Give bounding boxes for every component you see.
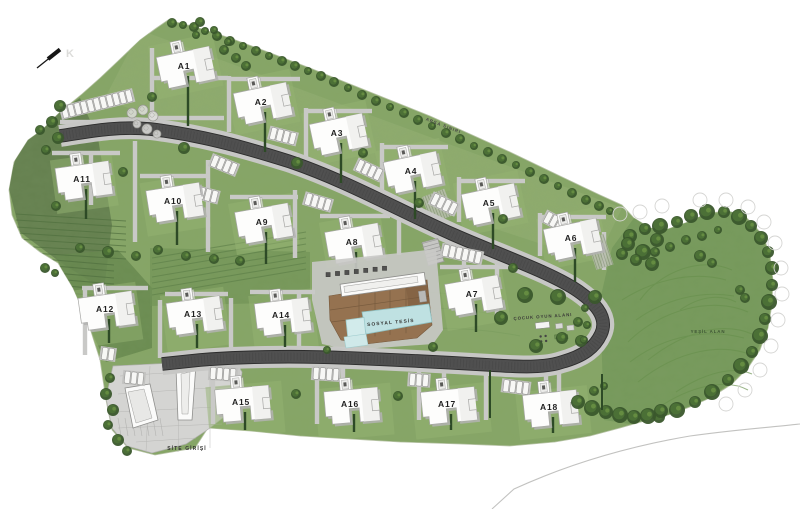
svg-text:SİTE GİRİŞİ: SİTE GİRİŞİ — [167, 445, 207, 452]
svg-text:A14: A14 — [272, 310, 290, 320]
svg-text:A3: A3 — [331, 128, 343, 138]
svg-text:A15: A15 — [232, 397, 250, 407]
svg-text:A12: A12 — [96, 304, 114, 314]
svg-text:K: K — [66, 48, 74, 60]
svg-text:A17: A17 — [438, 399, 456, 409]
svg-text:A10: A10 — [164, 196, 182, 206]
svg-text:A7: A7 — [466, 289, 478, 299]
svg-text:A18: A18 — [540, 402, 558, 412]
svg-text:A11: A11 — [73, 174, 91, 184]
svg-text:A2: A2 — [255, 97, 267, 107]
svg-text:A1: A1 — [178, 61, 190, 71]
svg-text:A16: A16 — [341, 399, 359, 409]
svg-text:A9: A9 — [256, 217, 268, 227]
svg-text:A13: A13 — [184, 309, 202, 319]
svg-text:A6: A6 — [565, 233, 577, 243]
svg-text:A5: A5 — [483, 198, 495, 208]
svg-text:A4: A4 — [405, 166, 417, 176]
svg-text:YEŞİL ALAN: YEŞİL ALAN — [691, 329, 726, 334]
svg-text:A8: A8 — [346, 237, 358, 247]
